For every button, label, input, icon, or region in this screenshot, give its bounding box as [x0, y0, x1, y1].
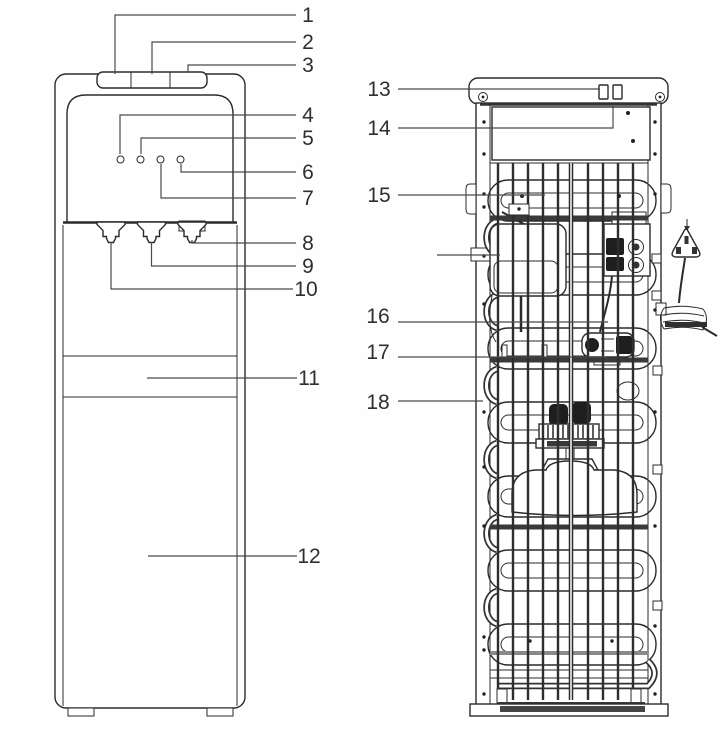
callout-2: 2 [302, 31, 314, 54]
power-switch-slot [613, 85, 622, 99]
callout-8: 8 [302, 232, 314, 255]
indicator-light [137, 156, 144, 163]
base-strip [500, 706, 645, 712]
callout-labels: 1 2 3 4 5 6 7 8 9 10 11 12 13 14 15 16 1… [294, 4, 391, 568]
plug-pin [692, 247, 697, 254]
power-plug [672, 219, 700, 257]
power-switch-slot [599, 85, 608, 99]
callout-7: 7 [302, 187, 314, 210]
callout-6: 6 [302, 161, 314, 184]
screw-center [659, 96, 662, 99]
cord-tail [702, 327, 717, 336]
base-bracket [497, 689, 507, 703]
back-view [466, 78, 717, 716]
callout-15: 15 [367, 184, 390, 207]
callout-17: 17 [366, 341, 389, 364]
callout-16: 16 [366, 305, 389, 328]
callout-11: 11 [298, 367, 320, 390]
plug-pin [685, 236, 689, 244]
faucets [97, 221, 206, 243]
screw-center [482, 96, 485, 99]
plug-pin [676, 247, 681, 254]
back-access-panel [492, 107, 650, 160]
foot-left [68, 708, 94, 716]
callout-1: 1 [302, 4, 314, 27]
power-cord [656, 258, 717, 336]
callout-3: 3 [302, 54, 314, 77]
front-view [55, 72, 245, 716]
sensor-dot [517, 207, 520, 210]
callout-14: 14 [367, 117, 391, 140]
base-bracket [631, 689, 641, 703]
cord-wrap-bar [665, 322, 707, 327]
indicator-light [177, 156, 184, 163]
control-buttons [97, 72, 207, 88]
callout-10: 10 [294, 278, 317, 301]
indicator-light [157, 156, 164, 163]
carry-handle-right [661, 184, 671, 213]
callout-5: 5 [302, 127, 314, 150]
parts-diagram-page: 1 2 3 4 5 6 7 8 9 10 11 12 13 14 15 16 1… [0, 0, 728, 731]
callout-13: 13 [367, 78, 390, 101]
callout-12: 12 [297, 545, 320, 568]
indicator-light [117, 156, 124, 163]
foot-right [207, 708, 233, 716]
leader-line-2 [152, 42, 296, 74]
water-dispenser-parts-diagram: 1 2 3 4 5 6 7 8 9 10 11 12 13 14 15 16 1… [0, 0, 728, 731]
callout-4: 4 [302, 104, 314, 127]
top-cover [469, 78, 668, 104]
callout-18: 18 [366, 391, 389, 414]
callout-9: 9 [302, 255, 314, 278]
cabinet-body-outline [55, 74, 245, 708]
button-bar [97, 72, 207, 88]
carry-handle-left [466, 184, 476, 214]
leader-line-3 [188, 65, 296, 72]
